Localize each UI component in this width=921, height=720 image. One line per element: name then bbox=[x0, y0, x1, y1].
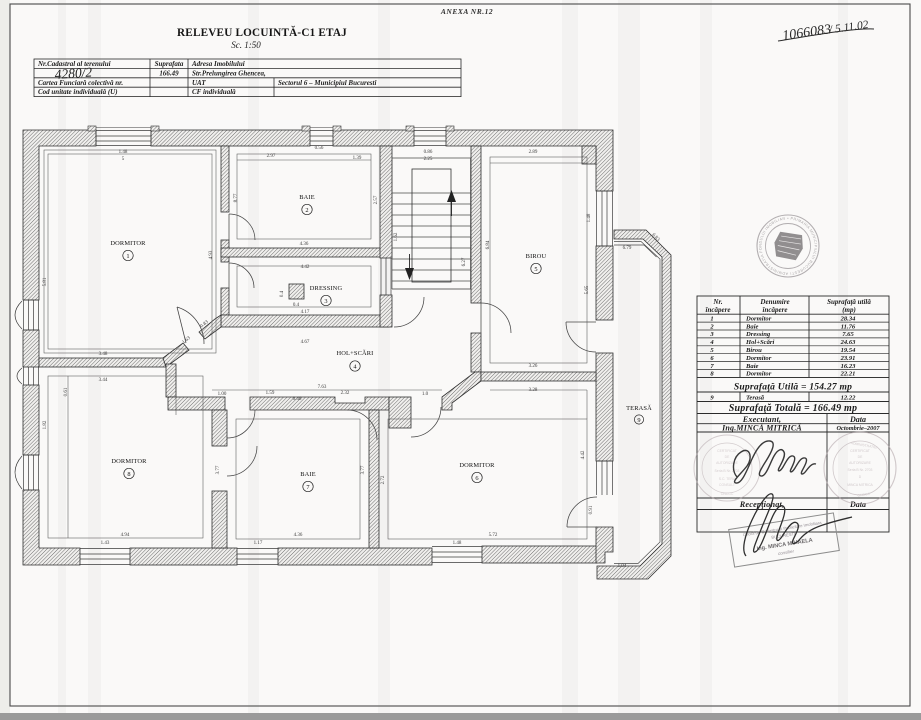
svg-text:încăpere: încăpere bbox=[706, 306, 731, 314]
svg-text:Data: Data bbox=[849, 500, 866, 509]
svg-text:Suprafaţă Utilă = 154.27 m: Suprafaţă Utilă = 154.27 mp bbox=[734, 382, 852, 393]
svg-text:7.63: 7.63 bbox=[318, 385, 327, 390]
svg-text:Baie: Baie bbox=[745, 323, 759, 330]
svg-text:166.49: 166.49 bbox=[159, 69, 179, 77]
svg-text:DE: DE bbox=[725, 455, 730, 459]
svg-text:2.89: 2.89 bbox=[529, 150, 538, 155]
svg-text:4280/2: 4280/2 bbox=[54, 64, 93, 82]
svg-text:7.65: 7.65 bbox=[842, 331, 854, 338]
svg-text:6: 6 bbox=[475, 475, 478, 482]
svg-text:3: 3 bbox=[709, 331, 714, 338]
svg-text:Str.Prelungirea Ghencea,: Str.Prelungirea Ghencea, bbox=[192, 69, 266, 77]
svg-text:Sc. 1:50: Sc. 1:50 bbox=[231, 40, 261, 50]
svg-text:S.C. TERA: S.C. TERA bbox=[719, 477, 736, 481]
svg-text:24.63: 24.63 bbox=[840, 339, 857, 346]
svg-text:16.23: 16.23 bbox=[841, 363, 857, 370]
svg-text:6.27: 6.27 bbox=[462, 257, 467, 266]
svg-text:2: 2 bbox=[305, 207, 308, 214]
svg-text:ONCGC: ONCGC bbox=[721, 492, 734, 496]
svg-text:0.91: 0.91 bbox=[589, 505, 594, 514]
svg-text:23.91: 23.91 bbox=[840, 355, 856, 362]
svg-text:Seria B Nr. 2703: Seria B Nr. 2703 bbox=[848, 468, 873, 472]
svg-text:1.82: 1.82 bbox=[43, 420, 48, 429]
svg-text:5: 5 bbox=[534, 266, 537, 273]
svg-text:Birou: Birou bbox=[745, 347, 762, 354]
svg-text:1.0: 1.0 bbox=[422, 392, 429, 397]
svg-text:Cod unitate individuală (U): Cod unitate individuală (U) bbox=[38, 88, 118, 96]
svg-text:Terasă: Terasă bbox=[746, 394, 765, 401]
svg-text:Hol+Scări: Hol+Scări bbox=[745, 339, 774, 346]
svg-text:1.59: 1.59 bbox=[266, 391, 275, 396]
svg-text:1.48: 1.48 bbox=[119, 150, 128, 155]
svg-text:1.00: 1.00 bbox=[218, 392, 227, 397]
svg-text:DORMITOR: DORMITOR bbox=[111, 458, 147, 465]
svg-text:1.04: 1.04 bbox=[618, 564, 627, 569]
svg-text:Dressing: Dressing bbox=[745, 331, 771, 338]
svg-text:DE: DE bbox=[858, 455, 863, 459]
svg-text:8: 8 bbox=[127, 471, 130, 478]
svg-text:Dormitor: Dormitor bbox=[745, 371, 772, 378]
svg-text:1.39: 1.39 bbox=[353, 156, 362, 161]
svg-text:11.76: 11.76 bbox=[841, 323, 856, 330]
svg-text:12.22: 12.22 bbox=[841, 394, 857, 401]
svg-text:3: 3 bbox=[324, 298, 327, 305]
svg-text:Suprafaţă Totală = 166.49: Suprafaţă Totală = 166.49 mp bbox=[729, 403, 857, 414]
svg-text:1.48: 1.48 bbox=[587, 213, 592, 222]
svg-text:CONSULT: CONSULT bbox=[719, 483, 735, 487]
svg-text:4.42: 4.42 bbox=[581, 450, 586, 459]
svg-text:CERTIFICAT: CERTIFICAT bbox=[850, 449, 870, 453]
svg-text:MINCA MITRICA: MINCA MITRICA bbox=[847, 483, 873, 487]
svg-text:4.42: 4.42 bbox=[301, 265, 310, 270]
svg-text:Seria B Nr. 2703: Seria B Nr. 2703 bbox=[715, 469, 740, 473]
svg-text:2.32: 2.32 bbox=[341, 391, 350, 396]
svg-text:ANEXA NR.12: ANEXA NR.12 bbox=[440, 7, 493, 16]
svg-text:0.46: 0.46 bbox=[293, 397, 302, 402]
svg-text:0.61: 0.61 bbox=[64, 387, 69, 396]
svg-text:9: 9 bbox=[637, 417, 640, 424]
svg-text:4: 4 bbox=[709, 339, 714, 346]
svg-text:AUTORIZARE: AUTORIZARE bbox=[849, 461, 872, 465]
svg-text:BIROU: BIROU bbox=[526, 253, 547, 260]
svg-text:DRESSING: DRESSING bbox=[310, 285, 343, 292]
svg-text:TERASĂ: TERASĂ bbox=[626, 404, 652, 412]
svg-text:4.36: 4.36 bbox=[300, 242, 309, 247]
svg-text:AUTORIZARE: AUTORIZARE bbox=[716, 461, 739, 465]
svg-text:0.86: 0.86 bbox=[424, 150, 433, 155]
svg-text:4.67: 4.67 bbox=[301, 340, 310, 345]
svg-text:3.77: 3.77 bbox=[361, 465, 366, 474]
svg-text:1.43: 1.43 bbox=[101, 541, 110, 546]
svg-text:5.72: 5.72 bbox=[489, 533, 498, 538]
svg-text:DORMITOR: DORMITOR bbox=[459, 462, 495, 469]
svg-text:2.72: 2.72 bbox=[381, 475, 386, 484]
svg-text:Baie: Baie bbox=[745, 363, 759, 370]
svg-text:CF individuală: CF individuală bbox=[192, 88, 236, 96]
svg-text:6.79: 6.79 bbox=[623, 246, 632, 251]
svg-text:Data: Data bbox=[849, 415, 866, 424]
svg-text:4.17: 4.17 bbox=[301, 310, 310, 315]
svg-text:28.34: 28.34 bbox=[840, 315, 857, 322]
svg-text:BAIE: BAIE bbox=[299, 194, 315, 201]
svg-text:1: 1 bbox=[126, 253, 129, 260]
svg-text:Suprafaţă utilă: Suprafaţă utilă bbox=[827, 298, 871, 306]
svg-text:încăpere: încăpere bbox=[763, 306, 788, 314]
svg-text:8.77: 8.77 bbox=[234, 193, 239, 202]
svg-text:UAT: UAT bbox=[192, 79, 206, 87]
svg-text:0.4: 0.4 bbox=[293, 303, 300, 308]
svg-text:1.17: 1.17 bbox=[254, 541, 263, 546]
svg-text:2.97: 2.97 bbox=[267, 154, 276, 159]
svg-text:4.94: 4.94 bbox=[121, 533, 130, 538]
svg-text:Adresa Imobilului: Adresa Imobilului bbox=[191, 60, 245, 68]
svg-text:0.4: 0.4 bbox=[280, 290, 285, 297]
svg-text:Octombrie–2007: Octombrie–2007 bbox=[836, 425, 880, 432]
svg-text:1.62: 1.62 bbox=[394, 232, 399, 241]
svg-text:DORMITOR: DORMITOR bbox=[110, 240, 146, 247]
svg-text:HOL+SCĂRI: HOL+SCĂRI bbox=[337, 349, 374, 357]
svg-text:4.93: 4.93 bbox=[209, 250, 214, 259]
svg-text:Ing.MINCĂ MITRICĂ: Ing.MINCĂ MITRICĂ bbox=[721, 422, 802, 432]
svg-text:(mp): (mp) bbox=[842, 306, 856, 314]
svg-text:3.44: 3.44 bbox=[99, 378, 108, 383]
svg-text:CERTIFICAT: CERTIFICAT bbox=[717, 449, 737, 453]
svg-text:Nr.: Nr. bbox=[712, 298, 722, 306]
svg-text:1.48: 1.48 bbox=[453, 541, 462, 546]
svg-text:Suprafata: Suprafata bbox=[155, 60, 184, 68]
svg-text:3.26: 3.26 bbox=[529, 364, 538, 369]
svg-text:5.81: 5.81 bbox=[43, 277, 48, 286]
svg-text:3.28: 3.28 bbox=[529, 388, 538, 393]
svg-text:Dormitor: Dormitor bbox=[745, 315, 772, 322]
svg-text:1: 1 bbox=[710, 315, 713, 322]
svg-text:2.25: 2.25 bbox=[424, 157, 433, 162]
svg-text:2.57: 2.57 bbox=[374, 195, 379, 204]
svg-text:3.77: 3.77 bbox=[216, 465, 221, 474]
svg-text:BAIE: BAIE bbox=[300, 471, 316, 478]
svg-text:Dormitor: Dormitor bbox=[745, 355, 772, 362]
svg-text:6.84: 6.84 bbox=[486, 240, 491, 249]
svg-text:19.54: 19.54 bbox=[841, 347, 857, 354]
svg-text:3.48: 3.48 bbox=[99, 352, 108, 357]
svg-text:Sectorul 6 – Municipiul Bu: Sectorul 6 – Municipiul Bucuresti bbox=[278, 79, 376, 87]
svg-text:4.36: 4.36 bbox=[294, 533, 303, 538]
svg-text:RELEVEU LOCUINTĂ-C1 ETAJ: RELEVEU LOCUINTĂ-C1 ETAJ bbox=[177, 27, 347, 39]
svg-text:Denumire: Denumire bbox=[759, 298, 789, 306]
svg-text:0.56: 0.56 bbox=[315, 146, 324, 151]
svg-text:2: 2 bbox=[709, 323, 714, 330]
svg-text:5.65: 5.65 bbox=[585, 285, 590, 294]
svg-text:22.21: 22.21 bbox=[840, 371, 856, 378]
